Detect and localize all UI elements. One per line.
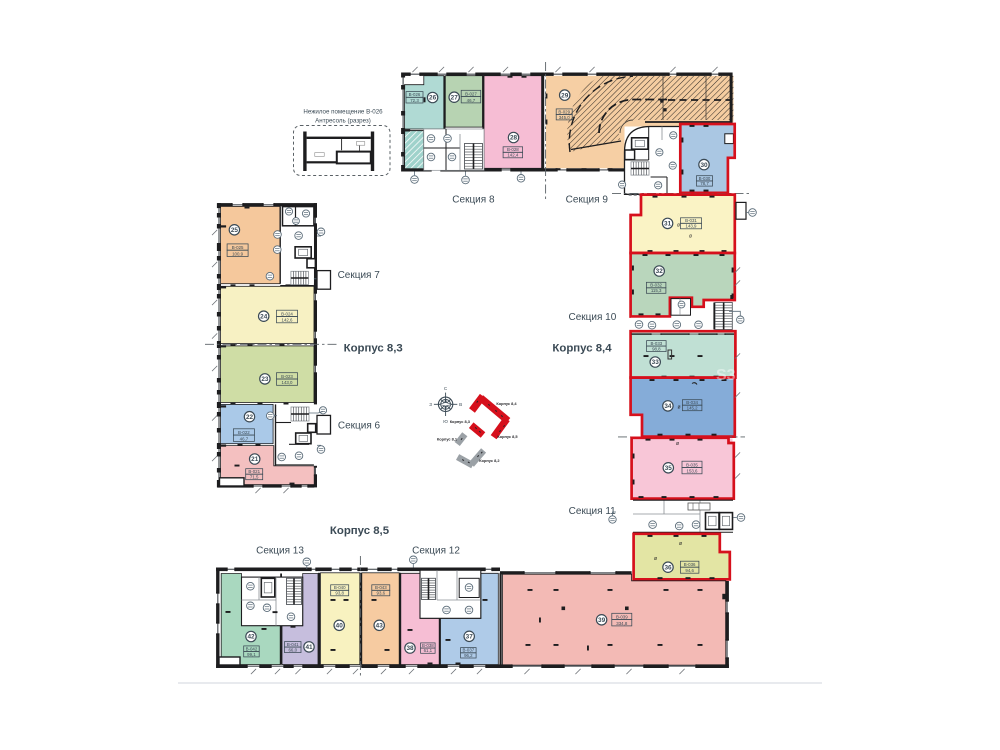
svg-text:26: 26 <box>429 95 437 102</box>
svg-text:345,0: 345,0 <box>559 115 571 120</box>
svg-text:В-025: В-025 <box>232 245 244 250</box>
svg-text:Секция 10: Секция 10 <box>569 312 617 323</box>
svg-text:Секция 9: Секция 9 <box>566 195 609 206</box>
svg-text:37: 37 <box>466 634 474 641</box>
svg-text:43: 43 <box>376 623 384 630</box>
svg-text:В-021: В-021 <box>248 469 260 474</box>
svg-text:В-031: В-031 <box>685 218 697 223</box>
svg-text:72,3: 72,3 <box>410 98 419 103</box>
svg-text:З: З <box>429 402 432 407</box>
svg-text:142,6: 142,6 <box>282 318 294 323</box>
svg-text:В-042: В-042 <box>246 646 258 651</box>
svg-text:Корпус 8,3: Корпус 8,3 <box>344 343 403 355</box>
svg-text:93,6: 93,6 <box>377 591 386 596</box>
svg-text:23: 23 <box>261 376 269 383</box>
svg-text:34: 34 <box>664 403 672 410</box>
svg-text:93,8: 93,8 <box>335 591 344 596</box>
svg-text:В-024: В-024 <box>281 311 293 316</box>
svg-text:Антресоль (разрез): Антресоль (разрез) <box>315 118 371 125</box>
svg-text:В-033: В-033 <box>650 341 662 346</box>
svg-text:32: 32 <box>656 268 664 275</box>
svg-text:31: 31 <box>664 221 672 228</box>
svg-text:Секция 7: Секция 7 <box>338 270 381 281</box>
svg-text:Секция 12: Секция 12 <box>412 546 460 557</box>
svg-text:29: 29 <box>561 92 569 99</box>
svg-text:В: В <box>459 402 462 407</box>
svg-text:В-043: В-043 <box>375 585 387 590</box>
svg-text:ø: ø <box>677 223 680 229</box>
svg-text:ø: ø <box>678 405 681 411</box>
svg-text:ø: ø <box>654 556 657 562</box>
svg-text:334,8: 334,8 <box>616 621 628 626</box>
svg-text:В-023: В-023 <box>281 374 293 379</box>
svg-text:71,5: 71,5 <box>250 475 259 480</box>
svg-text:41: 41 <box>305 644 313 651</box>
svg-text:В-039: В-039 <box>616 615 628 620</box>
svg-text:36: 36 <box>664 564 672 571</box>
svg-text:В-036: В-036 <box>684 562 696 567</box>
svg-text:25: 25 <box>231 227 239 234</box>
svg-text:Корпус 8,5: Корпус 8,5 <box>497 434 518 439</box>
svg-text:В-040: В-040 <box>334 585 346 590</box>
svg-text:66,0: 66,0 <box>288 648 297 653</box>
svg-text:21: 21 <box>251 456 259 463</box>
svg-text:39: 39 <box>598 617 606 624</box>
svg-text:100,9: 100,9 <box>232 251 244 256</box>
svg-text:142,4: 142,4 <box>507 153 519 158</box>
svg-text:Корпус 8,4: Корпус 8,4 <box>552 343 612 355</box>
svg-text:Секция 8: Секция 8 <box>452 195 495 206</box>
svg-text:143,0: 143,0 <box>282 380 294 385</box>
svg-text:Корпус 8,1: Корпус 8,1 <box>437 437 458 442</box>
svg-text:ø: ø <box>689 234 692 240</box>
svg-text:28: 28 <box>510 135 518 142</box>
svg-text:99,1: 99,1 <box>247 652 256 657</box>
svg-text:42: 42 <box>247 634 255 641</box>
svg-text:27: 27 <box>451 94 459 101</box>
svg-text:Корпус 8,4: Корпус 8,4 <box>496 401 517 406</box>
svg-text:98,8: 98,8 <box>652 347 661 352</box>
svg-text:В-027: В-027 <box>465 92 477 97</box>
svg-text:35: 35 <box>665 465 673 472</box>
svg-text:S3: S3 <box>716 367 736 384</box>
svg-text:Секция 13: Секция 13 <box>256 546 304 557</box>
svg-text:В-026: В-026 <box>409 92 421 97</box>
svg-text:В-041: В-041 <box>287 642 299 647</box>
svg-text:96,2: 96,2 <box>464 653 473 658</box>
svg-text:Корпус 8,2: Корпус 8,2 <box>479 458 500 463</box>
svg-text:30: 30 <box>700 162 708 169</box>
svg-text:Корпус 8,5: Корпус 8,5 <box>330 525 390 537</box>
svg-text:Секция 6: Секция 6 <box>338 420 381 431</box>
svg-text:78,7: 78,7 <box>700 181 709 186</box>
svg-text:ø: ø <box>676 441 679 447</box>
svg-text:94,6: 94,6 <box>685 568 694 573</box>
svg-text:61,1: 61,1 <box>424 648 433 653</box>
svg-text:В-032: В-032 <box>650 283 662 288</box>
svg-text:Ю: Ю <box>443 419 448 424</box>
svg-text:33: 33 <box>652 359 660 366</box>
svg-text:В-028: В-028 <box>507 147 519 152</box>
svg-text:Нежилое помещение В-026: Нежилое помещение В-026 <box>303 109 383 116</box>
svg-text:ø: ø <box>679 541 682 547</box>
svg-text:143,9: 143,9 <box>686 224 698 229</box>
svg-text:24: 24 <box>260 313 268 320</box>
svg-text:Секция 11: Секция 11 <box>569 506 616 517</box>
svg-text:22: 22 <box>246 414 254 421</box>
svg-text:38: 38 <box>406 645 414 652</box>
svg-text:Корпус 8,3: Корпус 8,3 <box>450 419 471 424</box>
svg-text:153,6: 153,6 <box>687 469 699 474</box>
svg-text:В-029: В-029 <box>558 109 570 114</box>
svg-text:В-034: В-034 <box>686 400 698 405</box>
svg-text:145,2: 145,2 <box>687 406 699 411</box>
svg-text:46,7: 46,7 <box>467 98 476 103</box>
svg-text:115,3: 115,3 <box>651 288 662 293</box>
svg-text:В-035: В-035 <box>686 462 698 467</box>
svg-text:46,7: 46,7 <box>240 436 249 441</box>
svg-text:В-022: В-022 <box>238 430 250 435</box>
svg-text:40: 40 <box>336 623 344 630</box>
